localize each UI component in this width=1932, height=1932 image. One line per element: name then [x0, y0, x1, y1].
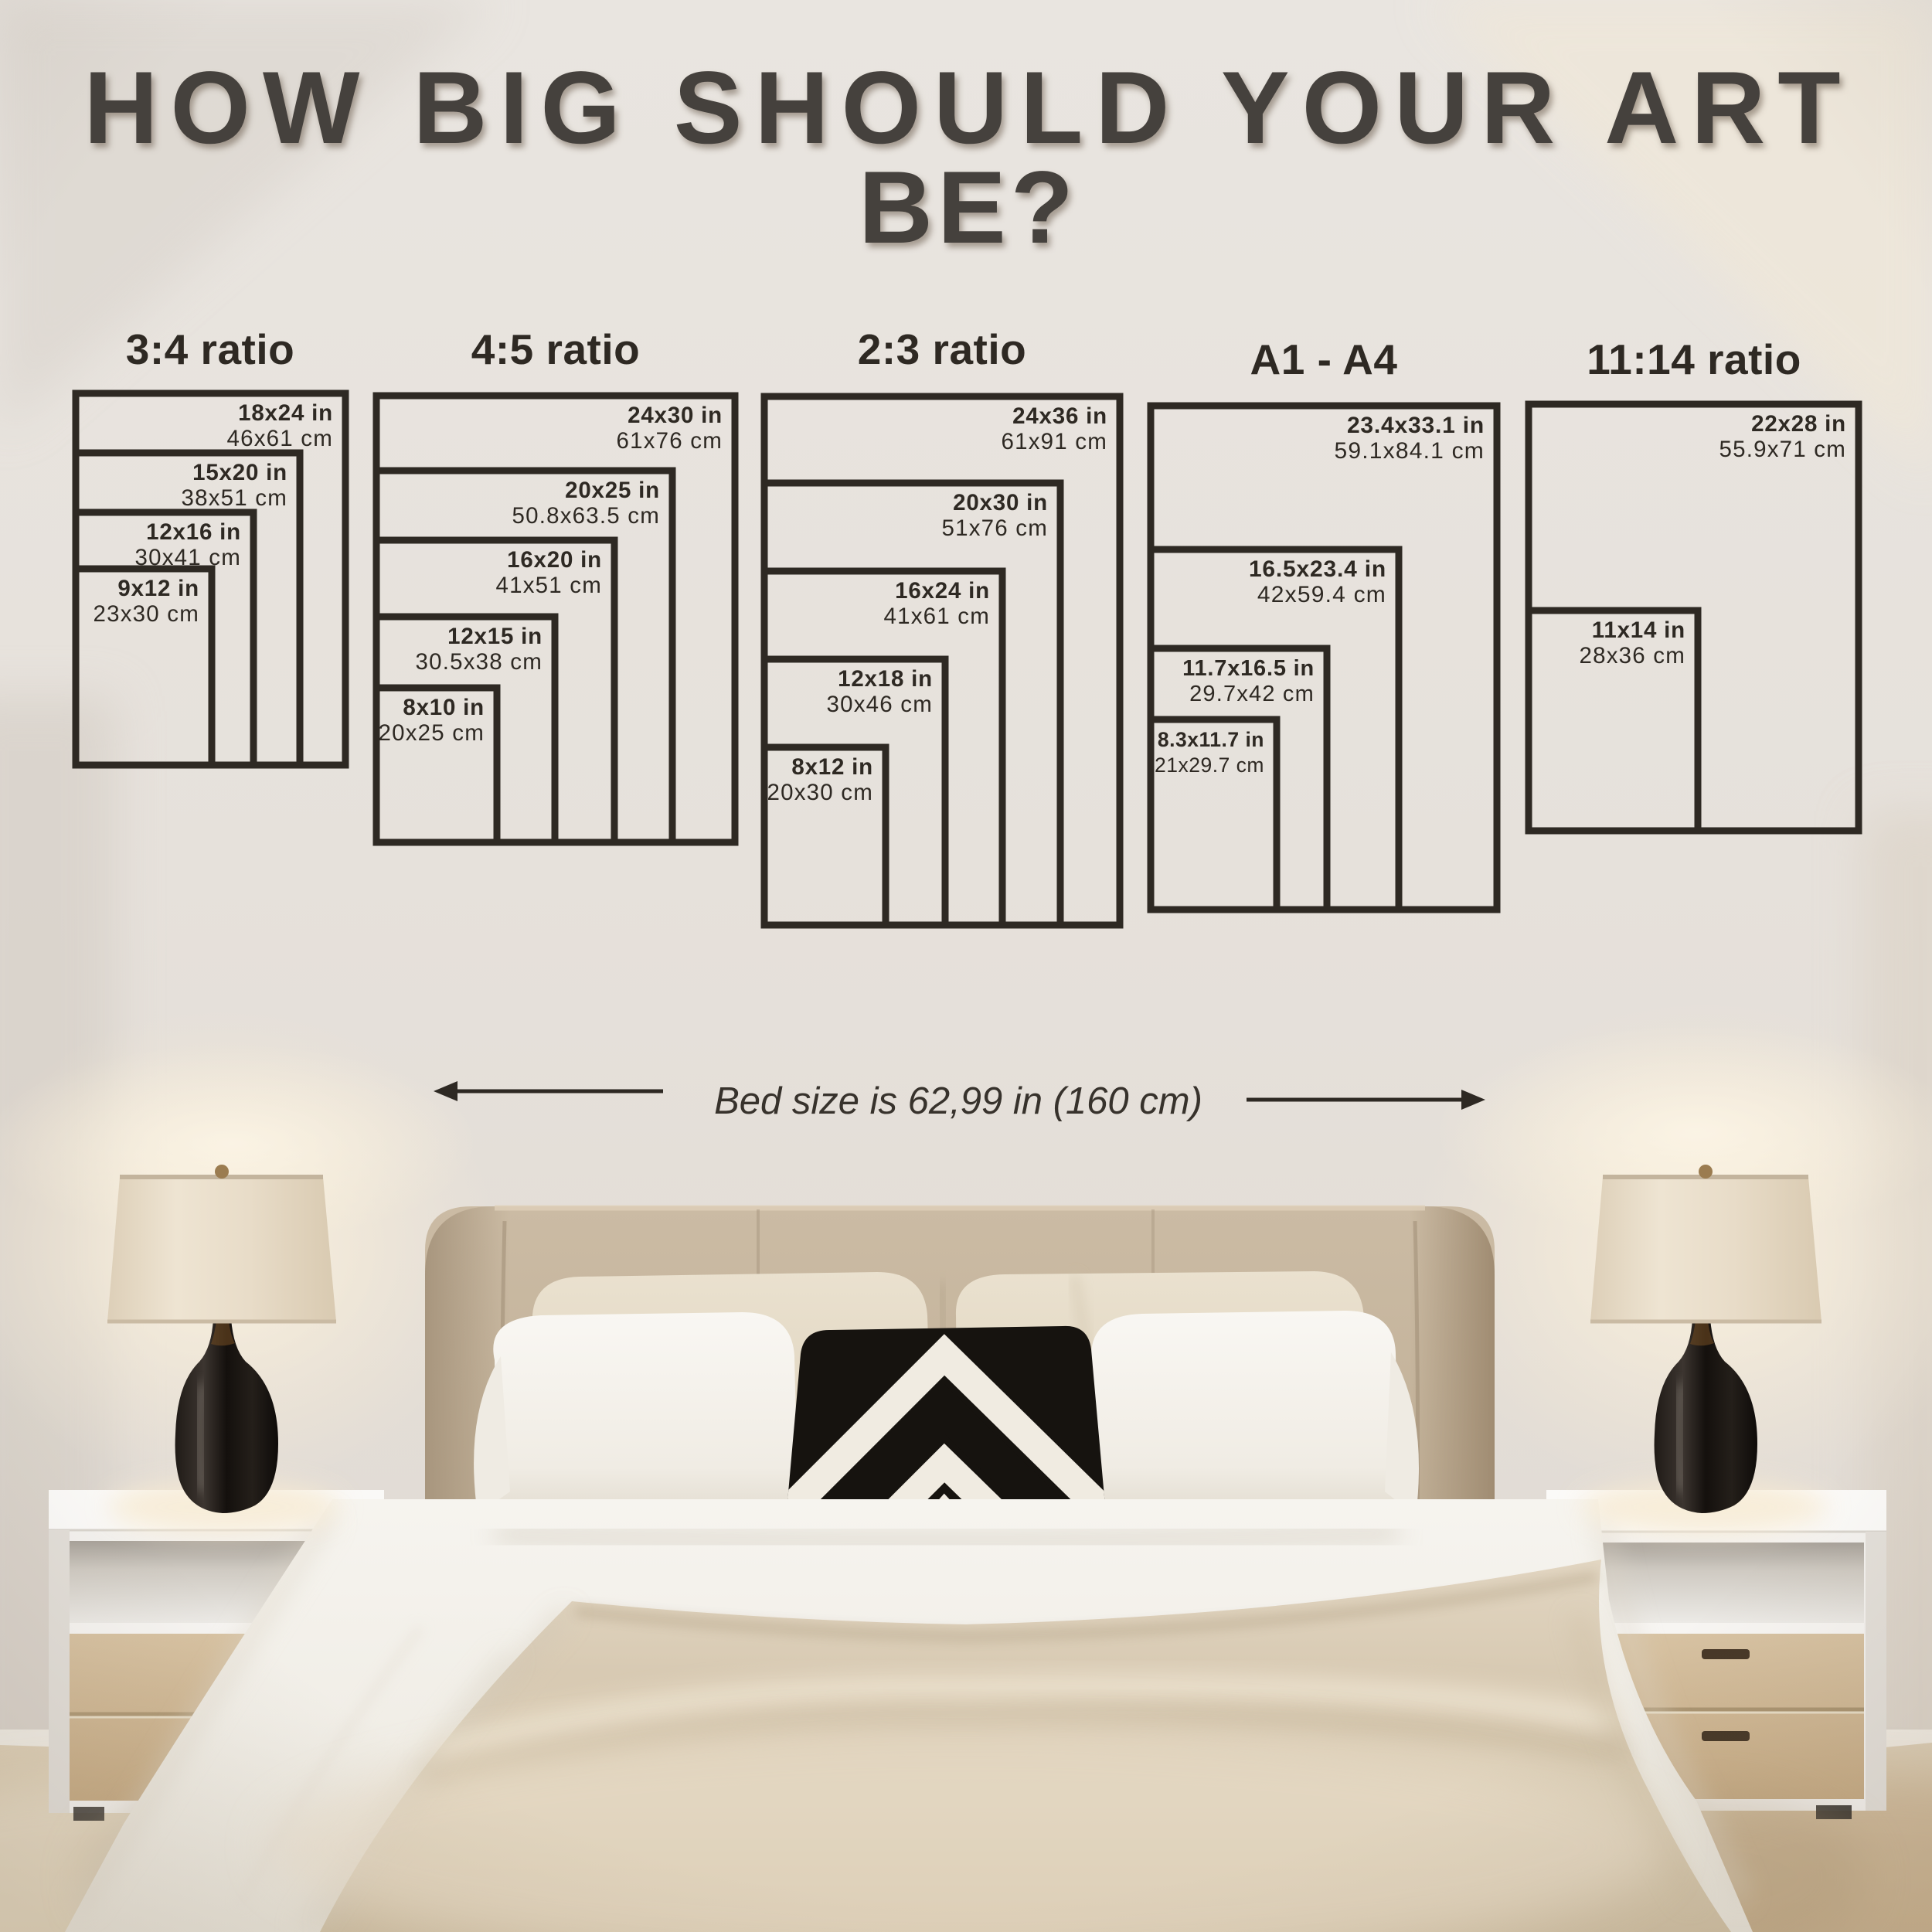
svg-text:12x15 in: 12x15 in — [447, 624, 543, 649]
svg-text:11:14 ratio: 11:14 ratio — [1587, 335, 1801, 383]
svg-text:30.5x38 cm: 30.5x38 cm — [416, 649, 543, 675]
svg-text:12x18 in: 12x18 in — [838, 666, 933, 692]
svg-text:38x51 cm: 38x51 cm — [182, 485, 288, 511]
svg-text:61x76 cm: 61x76 cm — [617, 428, 723, 454]
svg-text:9x12 in: 9x12 in — [117, 576, 199, 601]
svg-text:23x30 cm: 23x30 cm — [94, 601, 200, 627]
svg-text:11.7x16.5 in: 11.7x16.5 in — [1182, 656, 1315, 681]
svg-text:24x36 in: 24x36 in — [1012, 403, 1107, 429]
svg-text:42x59.4 cm: 42x59.4 cm — [1257, 582, 1386, 607]
svg-text:2:3 ratio: 2:3 ratio — [858, 325, 1026, 373]
svg-text:15x20 in: 15x20 in — [192, 460, 287, 485]
svg-text:55.9x71 cm: 55.9x71 cm — [1719, 437, 1847, 462]
svg-text:8.3x11.7 in: 8.3x11.7 in — [1158, 728, 1264, 751]
svg-text:11x14 in: 11x14 in — [1592, 617, 1685, 643]
svg-text:41x61 cm: 41x61 cm — [884, 604, 991, 629]
svg-text:3:4 ratio: 3:4 ratio — [126, 325, 294, 373]
svg-text:BE?: BE? — [859, 151, 1078, 265]
svg-text:59.1x84.1 cm: 59.1x84.1 cm — [1334, 438, 1485, 464]
svg-text:51x76 cm: 51x76 cm — [942, 515, 1049, 541]
svg-text:46x61 cm: 46x61 cm — [227, 426, 334, 451]
svg-text:A1 - A4: A1 - A4 — [1250, 335, 1398, 383]
svg-text:20x30 cm: 20x30 cm — [767, 780, 874, 805]
svg-text:HOW BIG SHOULD YOUR ART: HOW BIG SHOULD YOUR ART — [83, 51, 1852, 165]
svg-text:28x36 cm: 28x36 cm — [1580, 643, 1686, 668]
svg-text:16x24 in: 16x24 in — [895, 578, 990, 604]
svg-text:50.8x63.5 cm: 50.8x63.5 cm — [512, 503, 660, 529]
svg-text:Bed size is 62,99 in (160 cm): Bed size is 62,99 in (160 cm) — [714, 1080, 1202, 1122]
svg-text:30x46 cm: 30x46 cm — [827, 692, 934, 717]
svg-text:12x16 in: 12x16 in — [146, 519, 241, 545]
svg-text:20x25 in: 20x25 in — [565, 478, 660, 503]
svg-text:29.7x42 cm: 29.7x42 cm — [1189, 682, 1315, 706]
svg-text:41x51 cm: 41x51 cm — [496, 573, 603, 598]
svg-text:16x20 in: 16x20 in — [507, 547, 602, 573]
svg-text:20x25 cm: 20x25 cm — [379, 720, 485, 746]
svg-text:23.4x33.1 in: 23.4x33.1 in — [1347, 413, 1485, 438]
svg-text:22x28 in: 22x28 in — [1751, 411, 1846, 437]
svg-text:8x10 in: 8x10 in — [403, 695, 485, 720]
svg-text:20x30 in: 20x30 in — [953, 490, 1048, 515]
svg-text:18x24 in: 18x24 in — [238, 400, 333, 426]
svg-text:4:5 ratio: 4:5 ratio — [471, 325, 640, 373]
svg-text:8x12 in: 8x12 in — [791, 754, 873, 780]
svg-text:61x91 cm: 61x91 cm — [1002, 429, 1108, 454]
svg-text:21x29.7 cm: 21x29.7 cm — [1155, 753, 1264, 777]
svg-text:24x30 in: 24x30 in — [628, 403, 723, 428]
svg-text:16.5x23.4 in: 16.5x23.4 in — [1249, 556, 1386, 582]
